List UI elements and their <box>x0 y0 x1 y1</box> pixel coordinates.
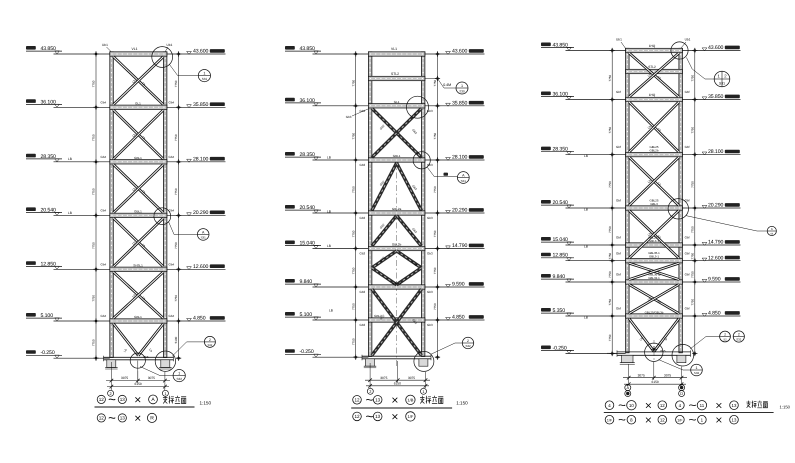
svg-text:2: 2 <box>110 391 112 396</box>
svg-text:7750: 7750 <box>92 188 96 195</box>
svg-text:Gb3: Gb3 <box>427 163 433 167</box>
svg-text:1/B: 1/B <box>407 398 413 403</box>
svg-text:7750: 7750 <box>608 75 612 82</box>
svg-text:7750: 7750 <box>608 127 612 134</box>
svg-text:1HQ: 1HQ <box>649 93 656 97</box>
svg-text:0b5: 0b5 <box>661 349 666 353</box>
svg-text:20.290: 20.290 <box>193 210 208 216</box>
svg-text:4.850: 4.850 <box>193 316 206 322</box>
svg-text:2: 2 <box>369 389 371 394</box>
svg-text:7750: 7750 <box>92 134 96 141</box>
svg-text:Ub1: Ub1 <box>102 43 108 47</box>
svg-text:3075: 3075 <box>408 376 415 380</box>
svg-text:LB: LB <box>327 244 331 248</box>
svg-text:12.600: 12.600 <box>708 255 723 261</box>
svg-text:3075: 3075 <box>148 376 155 380</box>
svg-text:Gbf: Gbf <box>616 307 621 311</box>
svg-text:7750: 7750 <box>690 271 694 278</box>
svg-text:Gb4: Gb4 <box>101 208 107 212</box>
svg-text:Gb3: Gb3 <box>427 323 433 327</box>
svg-text:10: 10 <box>629 403 634 408</box>
svg-text:4.850: 4.850 <box>708 311 721 317</box>
svg-text:12: 12 <box>354 414 360 419</box>
svg-text:LB: LB <box>584 207 588 211</box>
svg-text:1: 1 <box>203 72 205 76</box>
svg-text:7750: 7750 <box>433 132 437 139</box>
svg-text:35.850: 35.850 <box>708 94 723 100</box>
svg-text:Gbf: Gbf <box>685 251 690 255</box>
svg-text:S32: S32 <box>694 371 700 375</box>
svg-text:7750: 7750 <box>690 75 694 82</box>
svg-text:7750: 7750 <box>690 252 694 259</box>
svg-text:1/F: 1/F <box>607 418 613 422</box>
svg-text:GBL1: GBL1 <box>393 154 401 158</box>
svg-text:7750: 7750 <box>351 186 355 193</box>
svg-text:Gb3: Gb3 <box>360 216 366 220</box>
svg-text:1: 1 <box>164 391 166 396</box>
svg-text:7750: 7750 <box>608 299 612 306</box>
svg-text:0b5: 0b5 <box>144 355 149 359</box>
svg-text:13: 13 <box>120 416 126 421</box>
svg-text:3075: 3075 <box>121 376 128 380</box>
svg-text:2: 2 <box>724 332 726 336</box>
svg-text:LB: LB <box>329 308 333 312</box>
svg-text:LB: LB <box>327 209 331 213</box>
svg-text:7750: 7750 <box>608 226 612 233</box>
svg-text:43.600: 43.600 <box>452 49 467 55</box>
svg-text:1:150: 1:150 <box>456 400 468 405</box>
svg-text:GL1: GL1 <box>135 101 141 105</box>
svg-text:9.590: 9.590 <box>452 282 465 288</box>
svg-text:Gb3: Gb3 <box>360 252 366 256</box>
svg-text:LB: LB <box>584 315 588 319</box>
svg-text:3075: 3075 <box>638 373 645 377</box>
svg-text:GBL3-1: GBL3-1 <box>649 239 659 243</box>
svg-text:6150: 6150 <box>394 381 401 385</box>
svg-text:Gb3: Gb3 <box>346 115 352 119</box>
svg-text:1:150: 1:150 <box>200 400 212 405</box>
svg-text:6150: 6150 <box>135 382 142 386</box>
svg-text:7750: 7750 <box>351 132 355 139</box>
svg-text:Gb3: Gb3 <box>360 323 366 327</box>
svg-text:STL2: STL2 <box>391 72 399 76</box>
svg-text:35.850: 35.850 <box>452 100 467 106</box>
svg-text:Gb3: Gb3 <box>427 252 433 256</box>
svg-text:7750: 7750 <box>690 226 694 233</box>
svg-text:7750: 7750 <box>174 188 178 195</box>
svg-text:LB: LB <box>68 211 72 215</box>
svg-text:7750: 7750 <box>92 80 96 87</box>
svg-text:Gbf: Gbf <box>616 251 621 255</box>
svg-text:7750: 7750 <box>433 267 437 274</box>
svg-text:1: 1 <box>461 84 463 88</box>
svg-text:12: 12 <box>99 397 105 402</box>
svg-text:7750: 7750 <box>92 339 96 346</box>
svg-text:5100: 5100 <box>174 336 178 343</box>
svg-text:GBL2a: GBL2a <box>392 207 402 211</box>
svg-text:7750: 7750 <box>608 271 612 278</box>
svg-text:Gb4: Gb4 <box>169 100 175 104</box>
svg-text:13: 13 <box>732 417 737 422</box>
svg-text:Gbf: Gbf <box>685 199 690 203</box>
svg-text:2: 2 <box>467 339 469 343</box>
svg-text:S31: S31 <box>461 179 467 183</box>
svg-text:7750: 7750 <box>174 80 178 87</box>
svg-text:GBL3: GBL3 <box>650 202 658 206</box>
svg-text:1: 1 <box>422 389 424 394</box>
svg-text:S32: S32 <box>207 344 212 347</box>
svg-text:12: 12 <box>354 398 360 403</box>
svg-text:7750: 7750 <box>433 79 437 86</box>
svg-text:12: 12 <box>660 417 665 422</box>
svg-text:S32: S32 <box>465 344 470 348</box>
svg-text:7750: 7750 <box>690 299 694 306</box>
svg-text:7750: 7750 <box>174 134 178 141</box>
svg-text:7750: 7750 <box>174 295 178 302</box>
svg-text:1:150: 1:150 <box>780 404 791 409</box>
svg-text:Gbf: Gbf <box>685 273 690 277</box>
svg-text:1/F: 1/F <box>408 414 414 419</box>
svg-text:GBL32-1: GBL32-1 <box>648 276 660 280</box>
svg-text:S30: S30 <box>459 89 465 93</box>
svg-text:Gbf: Gbf <box>685 236 690 240</box>
svg-text:S31: S31 <box>719 81 725 85</box>
svg-text:GBL1: GBL1 <box>134 209 142 213</box>
svg-text:7750: 7750 <box>351 267 355 274</box>
svg-text:1HQ: 1HQ <box>649 44 656 48</box>
svg-text:Gb4: Gb4 <box>101 314 107 318</box>
svg-text:S31: S31 <box>202 77 208 81</box>
svg-text:A: A <box>771 227 773 231</box>
svg-text:28.100: 28.100 <box>708 149 723 155</box>
svg-text:7750: 7750 <box>608 334 612 341</box>
svg-text:43.600: 43.600 <box>708 45 723 51</box>
svg-text:Gb4: Gb4 <box>101 155 107 159</box>
svg-text:Gb4: Gb4 <box>169 262 175 266</box>
svg-text:7750: 7750 <box>351 338 355 345</box>
svg-text:6150: 6150 <box>652 380 659 384</box>
svg-text:S32: S32 <box>736 338 741 342</box>
svg-text:Gb4: Gb4 <box>101 100 107 104</box>
svg-text:Gbf: Gbf <box>616 236 621 240</box>
svg-text:2: 2 <box>738 332 740 336</box>
svg-text:7750: 7750 <box>433 230 437 237</box>
svg-text:GBL2b: GBL2b <box>392 281 402 285</box>
svg-text:Gbf: Gbf <box>685 145 690 149</box>
svg-text:Gb3: Gb3 <box>427 290 433 294</box>
svg-text:Ub1: Ub1 <box>167 43 173 47</box>
svg-text:Gb4: Gb4 <box>101 262 107 266</box>
svg-text:Gbf: Gbf <box>616 199 621 203</box>
svg-text:3075: 3075 <box>664 373 671 377</box>
svg-text:S32: S32 <box>176 377 182 381</box>
svg-text:12: 12 <box>99 416 105 421</box>
svg-text:Gb4: Gb4 <box>169 155 175 159</box>
svg-text:VL1: VL1 <box>391 47 397 51</box>
svg-text:7750: 7750 <box>433 186 437 193</box>
svg-text:7750: 7750 <box>608 252 612 259</box>
svg-text:Ub1: Ub1 <box>685 38 691 42</box>
svg-text:A: A <box>626 385 629 390</box>
svg-text:VL1: VL1 <box>132 47 138 51</box>
svg-text:GL1: GL1 <box>394 100 400 104</box>
svg-text:3075: 3075 <box>380 376 387 380</box>
svg-text:Ub1: Ub1 <box>616 38 622 42</box>
svg-text:7750: 7750 <box>351 303 355 310</box>
svg-text:28.100: 28.100 <box>193 156 208 162</box>
svg-text:SHSL1: SHSL1 <box>133 263 143 267</box>
svg-text:14.790: 14.790 <box>452 243 467 249</box>
svg-text:1: 1 <box>178 372 180 376</box>
svg-text:GBL3-1: GBL3-1 <box>649 255 659 259</box>
svg-text:Gb4: Gb4 <box>169 314 175 318</box>
svg-text:S2: S2 <box>723 338 727 341</box>
svg-text:7750: 7750 <box>690 181 694 188</box>
svg-text:GBL25/GBL3b: GBL25/GBL3b <box>645 310 664 314</box>
svg-text:7750: 7750 <box>92 295 96 302</box>
svg-text:43.600: 43.600 <box>193 49 208 55</box>
svg-text:Gbf: Gbf <box>616 273 621 277</box>
svg-text:13: 13 <box>732 403 737 408</box>
svg-text:R: R <box>150 416 154 422</box>
svg-text:13: 13 <box>375 414 381 419</box>
svg-text:7750: 7750 <box>351 79 355 86</box>
svg-text:GBL2b: GBL2b <box>392 243 402 247</box>
svg-text:13: 13 <box>120 397 126 402</box>
svg-text:Gb3: Gb3 <box>360 290 366 294</box>
svg-text:7750: 7750 <box>351 230 355 237</box>
svg-text:7750: 7750 <box>92 242 96 249</box>
svg-text:LB: LB <box>68 157 72 161</box>
svg-text:28.100: 28.100 <box>452 155 467 161</box>
svg-text:Gb3: Gb3 <box>360 163 366 167</box>
svg-text:1: 1 <box>696 366 698 370</box>
svg-text:Gb3: Gb3 <box>427 216 433 220</box>
svg-text:Gbf: Gbf <box>616 145 621 149</box>
svg-text:9.590: 9.590 <box>708 277 721 283</box>
svg-text:LB: LB <box>584 154 588 158</box>
svg-text:20.290: 20.290 <box>452 208 467 214</box>
svg-text:13: 13 <box>375 398 381 403</box>
svg-text:7750: 7750 <box>433 303 437 310</box>
svg-text:11: 11 <box>700 403 705 408</box>
svg-text:GBL1: GBL1 <box>134 156 142 160</box>
svg-text:Gb4: Gb4 <box>169 208 175 212</box>
svg-text:GBL1: GBL1 <box>134 315 142 319</box>
svg-text:14.790: 14.790 <box>708 240 723 246</box>
svg-text:Gbf: Gbf <box>685 90 690 94</box>
svg-text:4.850: 4.850 <box>452 315 465 321</box>
svg-text:7750: 7750 <box>174 242 178 249</box>
svg-text:12: 12 <box>660 403 665 408</box>
svg-text:Gb3: Gb3 <box>427 109 433 113</box>
svg-text:STL2: STL2 <box>648 65 656 69</box>
svg-text:Gbf: Gbf <box>685 307 690 311</box>
svg-text:S31: S31 <box>201 236 207 240</box>
svg-text:7750: 7750 <box>690 127 694 134</box>
svg-text:D: D <box>680 391 683 396</box>
svg-text:20.290: 20.290 <box>708 203 723 209</box>
svg-text:7750: 7750 <box>608 181 612 188</box>
svg-text:Gbf: Gbf <box>616 90 621 94</box>
svg-text:LB: LB <box>584 244 588 248</box>
svg-text:2: 2 <box>209 338 211 342</box>
svg-text:LB: LB <box>327 155 331 159</box>
svg-text:35.850: 35.850 <box>193 102 208 108</box>
svg-text:12.600: 12.600 <box>193 264 208 270</box>
svg-text:1/F: 1/F <box>677 418 683 422</box>
svg-text:GBL2b: GBL2b <box>650 148 659 152</box>
svg-text:0.4M: 0.4M <box>443 83 451 87</box>
